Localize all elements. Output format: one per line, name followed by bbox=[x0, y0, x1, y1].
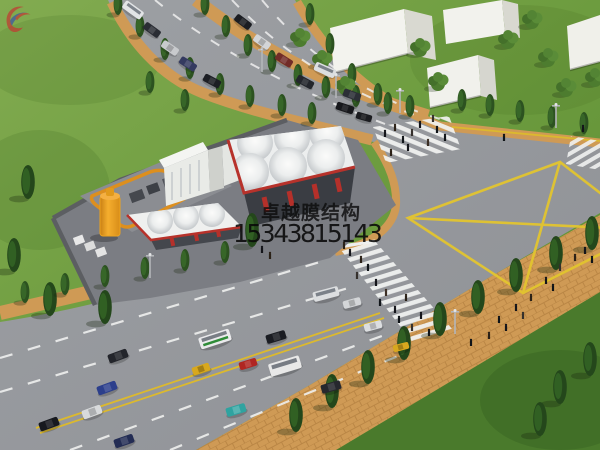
crosswalk-east bbox=[566, 136, 600, 170]
storage-tank-cap bbox=[106, 188, 114, 196]
storage-tank bbox=[100, 196, 120, 236]
rendering-canvas: 卓越膜结构 15343815143 bbox=[0, 0, 600, 450]
scene-rendering bbox=[0, 0, 600, 450]
